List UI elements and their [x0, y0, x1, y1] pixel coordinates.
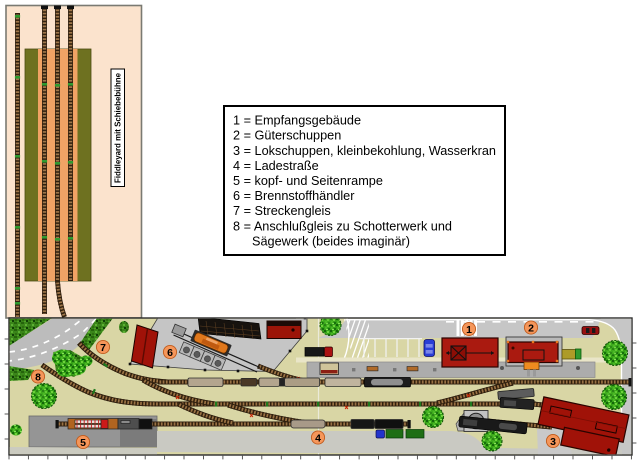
svg-text:5: 5	[80, 437, 86, 449]
svg-text:6 = Brennstoffhändler: 6 = Brennstoffhändler	[233, 189, 355, 203]
svg-text:7: 7	[100, 342, 106, 354]
svg-text:2 = Güterschuppen: 2 = Güterschuppen	[233, 129, 341, 143]
svg-text:3: 3	[550, 436, 556, 448]
svg-text:4: 4	[315, 432, 321, 444]
svg-text:7 = Streckengleis: 7 = Streckengleis	[233, 204, 331, 218]
svg-text:1 = Empfangsgebäude: 1 = Empfangsgebäude	[233, 114, 361, 128]
svg-text:8: 8	[35, 371, 41, 383]
svg-text:4 = Ladestraße: 4 = Ladestraße	[233, 159, 319, 173]
svg-text:Fiddleyard mit Schiebebühne: Fiddleyard mit Schiebebühne	[113, 73, 122, 183]
svg-text:5 = kopf- und Seitenrampe: 5 = kopf- und Seitenrampe	[233, 174, 383, 188]
svg-text:3 = Lokschuppen, kleinbekohlun: 3 = Lokschuppen, kleinbekohlung, Wasserk…	[233, 144, 496, 158]
svg-text:Sägewerk (beides imaginär): Sägewerk (beides imaginär)	[252, 234, 410, 248]
svg-text:6: 6	[167, 347, 173, 359]
svg-text:8 = Anschlußgleis zu Schotterw: 8 = Anschlußgleis zu Schotterwerk und	[233, 219, 452, 233]
svg-text:2: 2	[528, 322, 534, 334]
svg-text:1: 1	[466, 324, 472, 336]
